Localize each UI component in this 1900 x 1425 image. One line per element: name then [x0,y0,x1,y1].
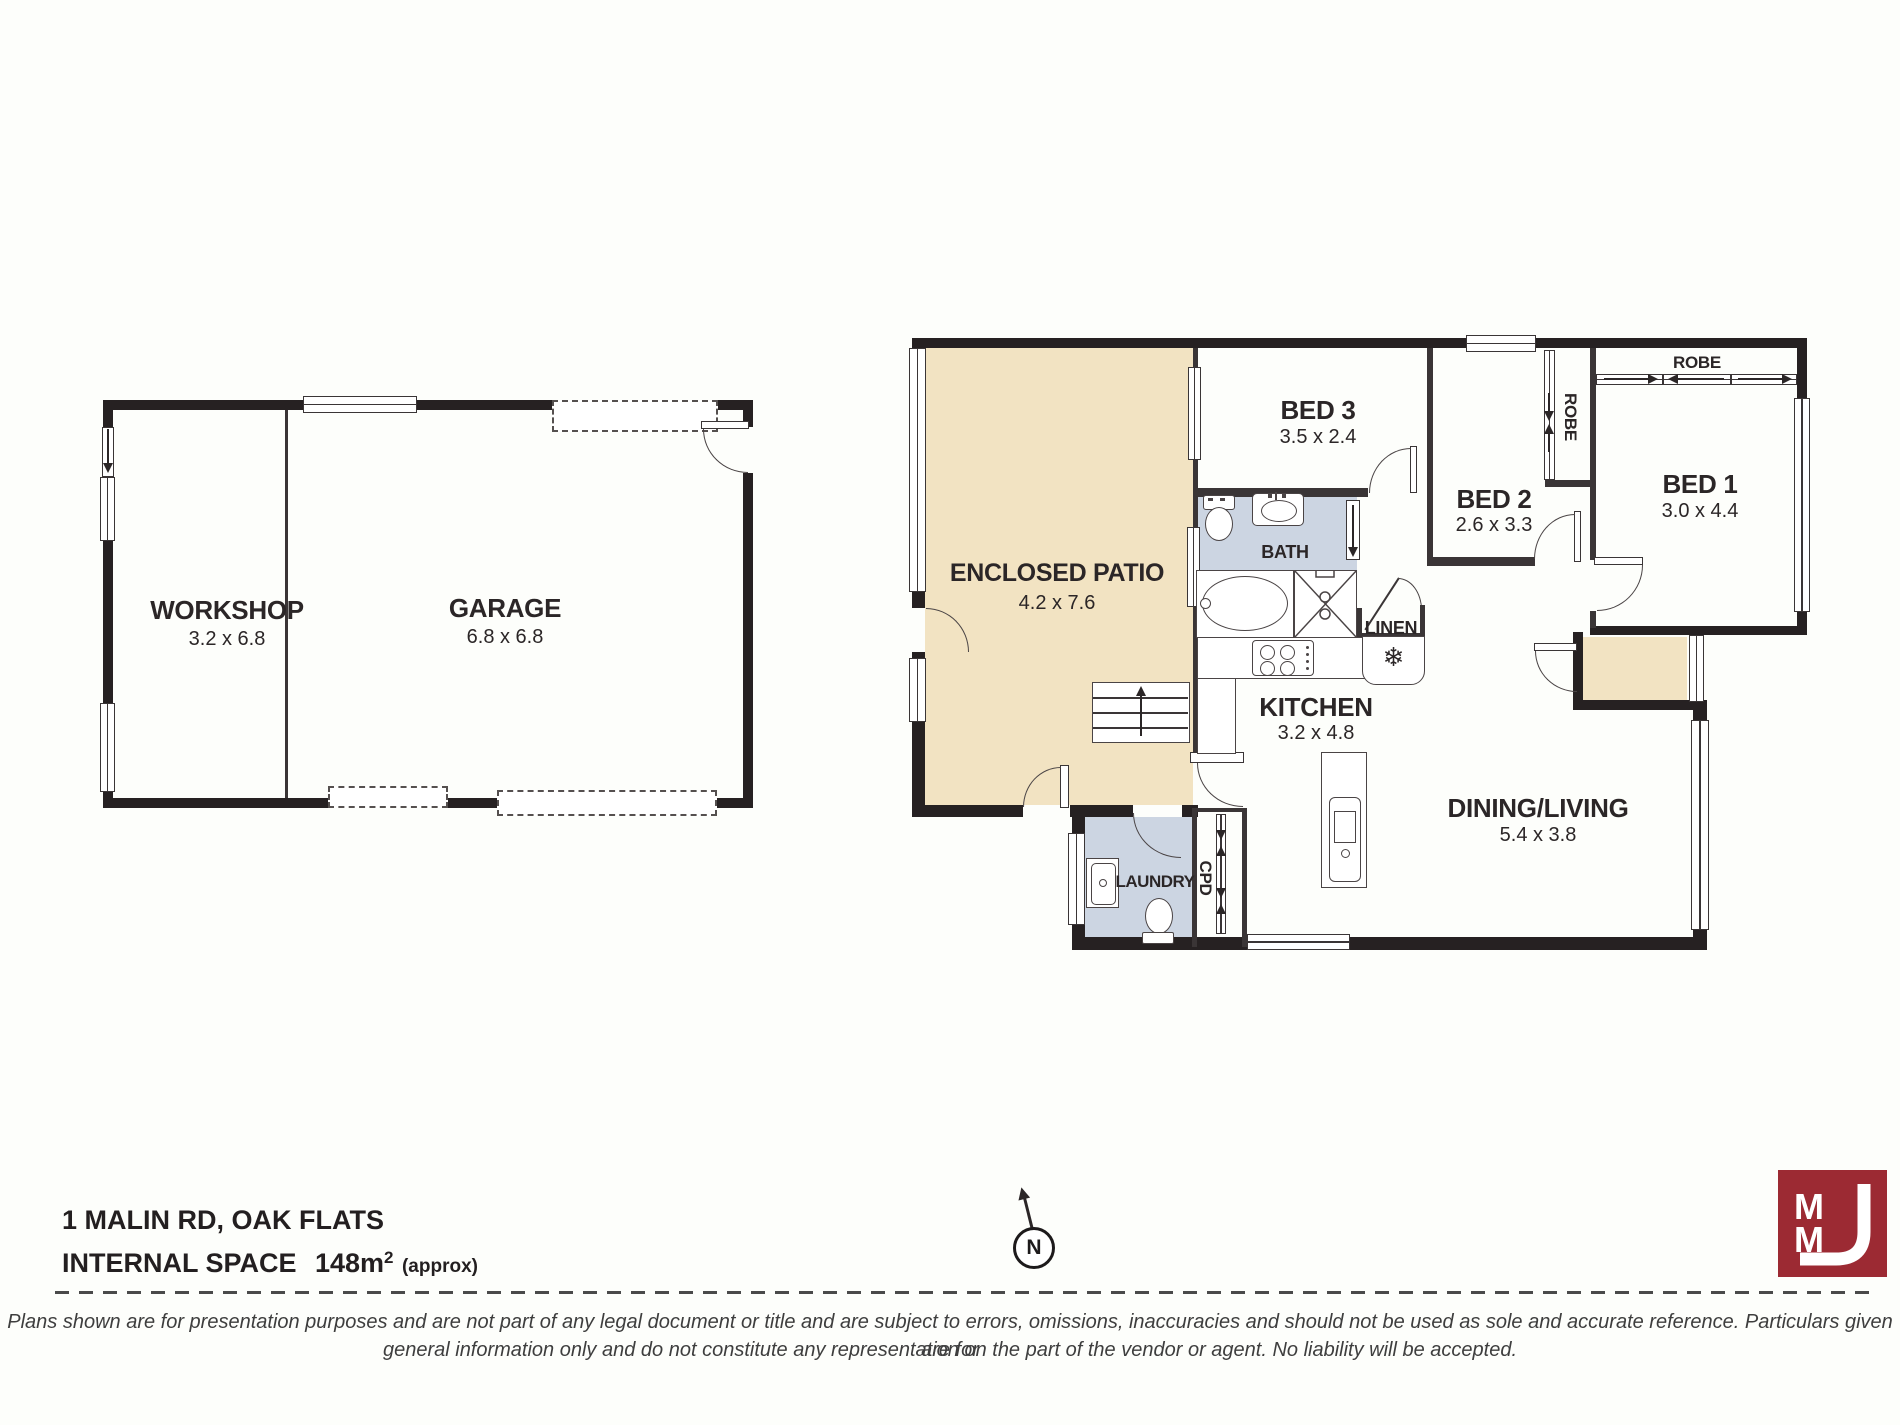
room-dims-bed3: 3.5 x 2.4 [1218,426,1418,449]
room-label-dining-living: DINING/LIVING [1408,793,1668,824]
fridge: ❄ [1362,636,1425,685]
room-label-bed2: BED 2 [1394,484,1594,515]
cpd-arrow-head [1216,904,1226,914]
stairs-up-arrow-head [1136,686,1146,696]
kitchen-island [1321,752,1367,888]
room-label-bath: BATH [1235,542,1335,563]
bed2-bottom-wall [1427,557,1535,566]
door-swing-arc [1597,565,1643,611]
wall [1350,937,1707,950]
cpd-wall [1242,810,1247,947]
cooktop [1252,640,1314,676]
cpd-wall [1192,808,1247,812]
room-dims-enclosed-patio: 4.2 x 7.6 [917,592,1197,615]
robe-track-tick [1730,375,1732,384]
room-dims-bed2: 2.6 x 3.3 [1394,514,1594,537]
room-label-bed1: BED 1 [1600,469,1800,500]
door-leaf [1060,765,1069,808]
wall [912,805,1023,817]
bathtub [1196,570,1294,638]
entry-arrow [107,429,109,463]
wall [103,792,113,808]
disclaimer-line-2: general information only and do not cons… [0,1336,1900,1364]
toilet [1141,896,1175,944]
north-letter: N [1016,1236,1052,1260]
room-label-bed3: BED 3 [1218,395,1418,426]
window [100,477,115,541]
door-swing-arc [703,429,748,473]
wall [1573,700,1703,710]
robe-arrow [1678,378,1724,380]
window [1188,367,1201,460]
internal-space-label: INTERNAL SPACE [62,1248,297,1278]
wall [912,722,925,805]
room-label-kitchen: KITCHEN [1216,692,1416,723]
window [1466,335,1536,352]
room-label-linen: LINEN [1341,618,1441,639]
wall [1072,923,1085,947]
door-leaf [701,421,749,429]
window [909,348,926,592]
address-line: 1 MALIN RD, OAK FLATS [62,1205,384,1236]
toilet [1200,493,1238,541]
room-label-enclosed-patio: ENCLOSED PATIO [917,559,1197,588]
bath-door-arrow-head [1348,547,1358,557]
room-dims-bed1: 3.0 x 4.4 [1600,500,1800,523]
wall [103,400,113,427]
robe-track-tick [1662,375,1664,384]
wall [912,338,1807,348]
wall [1070,805,1133,817]
room-dims-kitchen: 3.2 x 4.8 [1216,722,1416,745]
cpd-arrow-head [1216,846,1226,856]
mmj-logo: M M [1778,1170,1887,1277]
window [909,658,926,722]
door-swing-arc [1197,763,1243,807]
room-label-cpd: CPD [1195,838,1215,918]
internal-space-sup: 2 [384,1248,393,1267]
fridge-snowflake-icon: ❄ [1363,644,1424,670]
window [303,396,417,413]
cpd-arrow-head [1216,830,1226,840]
cpd-arrow-head [1216,888,1226,898]
robe-arrow-head [1544,424,1554,434]
robe-arrow [1738,378,1782,380]
room-dims-dining-living: 5.4 x 3.8 [1408,824,1668,847]
door-leaf [1594,557,1643,565]
window [1691,720,1709,930]
robe-arrow-head [1544,411,1554,421]
wall [1797,338,1807,398]
garage-door-dashed [328,786,448,808]
window [1068,833,1085,925]
basin [1252,493,1304,526]
robe-arrow-head [1648,374,1658,384]
entry-arrow-head [103,463,113,473]
bath-door-arrow [1352,505,1354,547]
entry-floor [1583,637,1687,700]
wall [743,473,753,808]
linen-door-arc [1398,578,1422,610]
wall [1590,626,1807,635]
floor-plan-page: WORKSHOP 3.2 x 6.8 GARAGE 6.8 x 6.8 [0,0,1900,1425]
internal-space-value: 148m [315,1248,384,1278]
robe-arrow-head [1782,374,1792,384]
north-circle: N [1013,1227,1055,1269]
garage-door-dashed [552,400,718,432]
bed1-left-wall [1590,611,1596,628]
room-label-robe-bed2: ROBE [1560,377,1580,457]
window [1247,934,1350,950]
room-dims-garage: 6.8 x 6.8 [375,626,635,649]
robe-arrow [1548,393,1550,411]
wall [1193,348,1198,367]
door-leaf [1534,643,1577,651]
window [1689,635,1704,702]
dashed-separator [55,1291,1878,1294]
internal-space-line: INTERNAL SPACE 148m2 (approx) [62,1248,478,1279]
hall-floor [1087,740,1193,805]
window [100,703,115,792]
robe-arrow [1548,434,1550,452]
garage-door-dashed [497,790,717,816]
internal-space-approx: (approx) [402,1256,478,1277]
north-arrow: N [1013,1186,1073,1276]
room-label-workshop: WORKSHOP [97,595,357,626]
room-label-garage: GARAGE [375,593,635,624]
door-swing-arc [1535,651,1577,692]
robe-arrow [1604,378,1648,380]
robe-arrow-head [1668,374,1678,384]
stairs-up-arrow [1140,694,1142,736]
room-label-robe-bed1: ROBE [1647,353,1747,373]
room-dims-workshop: 3.2 x 6.8 [97,628,357,651]
